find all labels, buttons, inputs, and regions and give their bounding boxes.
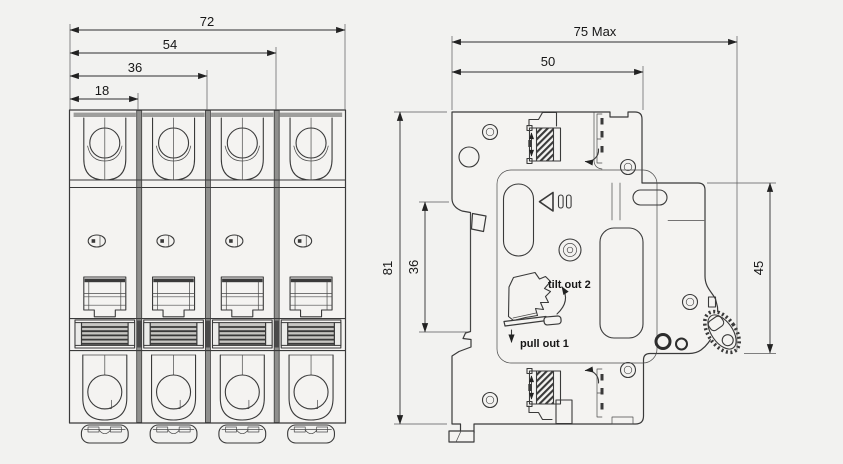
dim-label-three-pole: 54 <box>163 37 177 52</box>
side-view: tilt out 2 pull out 1 75 Max 50 81 36 45 <box>380 24 776 442</box>
front-dimensions: 72 54 36 18 <box>70 14 345 110</box>
dim-label-rail-recess: 36 <box>406 260 421 274</box>
tilt-out-label: tilt out 2 <box>548 279 591 291</box>
technical-drawing: 72 54 36 18 <box>0 0 843 464</box>
dim-label-one-pole: 18 <box>95 83 109 98</box>
dim-label-upper-depth: 50 <box>541 54 555 69</box>
dim-label-overall-width: 72 <box>200 14 214 29</box>
dim-label-height: 81 <box>380 261 395 275</box>
drawing-canvas: 72 54 36 18 <box>0 0 843 464</box>
dim-label-front-face: 45 <box>751 261 766 275</box>
side-body-outline <box>452 112 718 433</box>
front-view: 72 54 36 18 <box>70 14 346 443</box>
dim-label-depth-max: 75 Max <box>574 24 617 39</box>
dim-label-two-pole: 36 <box>128 60 142 75</box>
pull-out-label: pull out 1 <box>520 338 569 350</box>
